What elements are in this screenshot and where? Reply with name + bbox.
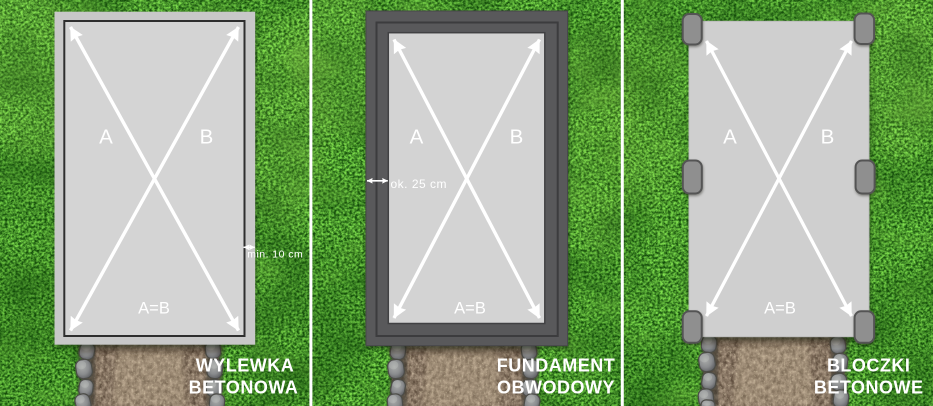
svg-text:A: A bbox=[99, 126, 113, 149]
svg-text:A=B: A=B bbox=[138, 300, 170, 318]
svg-text:FUNDAMENT: FUNDAMENT bbox=[497, 356, 616, 376]
svg-text:B: B bbox=[510, 126, 524, 149]
svg-text:A=B: A=B bbox=[454, 300, 486, 318]
svg-text:BETONOWA: BETONOWA bbox=[189, 378, 299, 398]
svg-text:min. 10 cm: min. 10 cm bbox=[247, 249, 303, 261]
svg-text:A: A bbox=[723, 126, 737, 149]
svg-text:A=B: A=B bbox=[764, 300, 796, 318]
svg-text:ok. 25 cm: ok. 25 cm bbox=[391, 177, 448, 191]
svg-text:WYLEWKA: WYLEWKA bbox=[196, 356, 294, 376]
svg-text:BETONOWE: BETONOWE bbox=[814, 378, 924, 398]
svg-text:BLOCZKI: BLOCZKI bbox=[827, 356, 911, 376]
svg-text:OBWODOWY: OBWODOWY bbox=[497, 378, 615, 398]
svg-text:A: A bbox=[410, 126, 424, 149]
svg-text:B: B bbox=[200, 126, 214, 149]
svg-text:B: B bbox=[821, 126, 835, 149]
